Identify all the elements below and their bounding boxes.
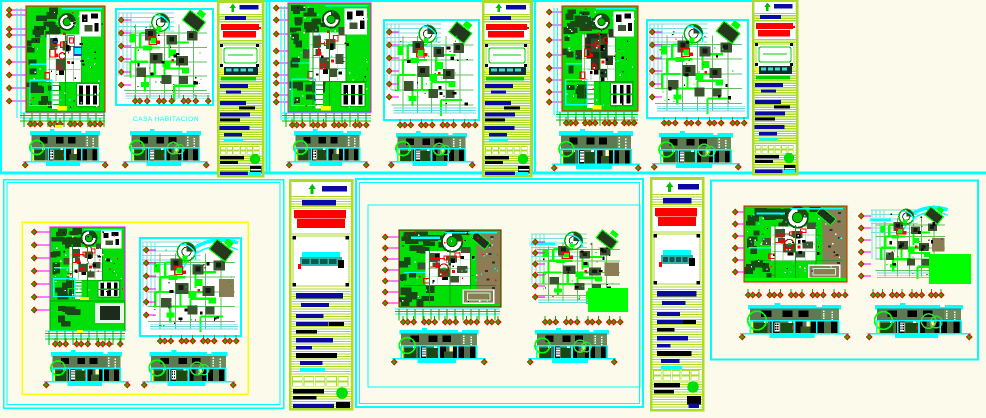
svg-text:CASA HABITACION: CASA HABITACION [133,116,199,123]
